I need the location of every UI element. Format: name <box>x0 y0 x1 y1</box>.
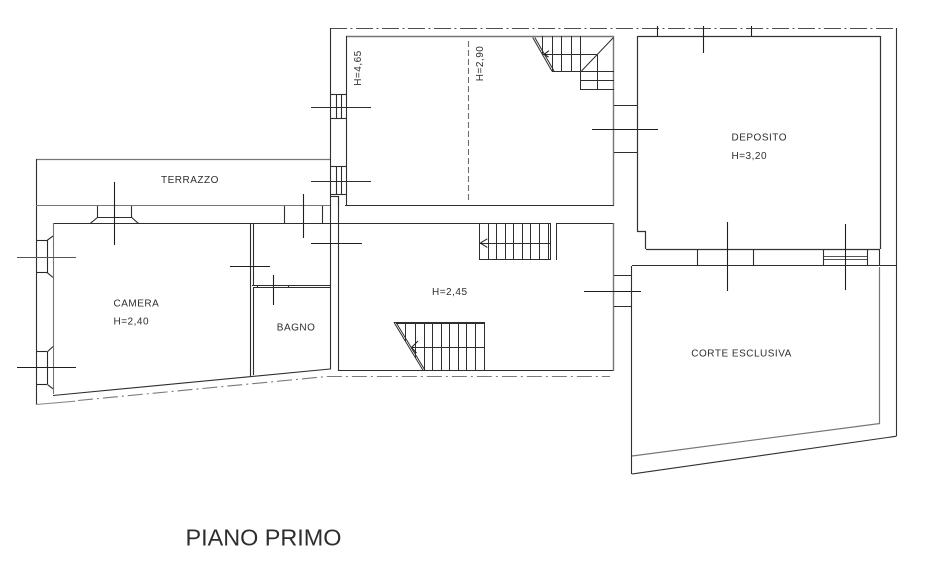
svg-text:H=2,90: H=2,90 <box>475 46 486 82</box>
svg-text:H=2,40: H=2,40 <box>114 316 150 327</box>
svg-text:TERRAZZO: TERRAZZO <box>161 175 219 186</box>
svg-text:PIANO PRIMO: PIANO PRIMO <box>186 525 342 551</box>
svg-text:H=2,45: H=2,45 <box>432 287 468 298</box>
svg-text:BAGNO: BAGNO <box>277 322 316 333</box>
svg-text:H=4,65: H=4,65 <box>353 50 364 86</box>
svg-text:CORTE ESCLUSIVA: CORTE ESCLUSIVA <box>691 349 792 360</box>
svg-text:H=3,20: H=3,20 <box>732 151 768 162</box>
svg-text:CAMERA: CAMERA <box>114 299 160 310</box>
svg-text:DEPOSITO: DEPOSITO <box>732 133 788 144</box>
